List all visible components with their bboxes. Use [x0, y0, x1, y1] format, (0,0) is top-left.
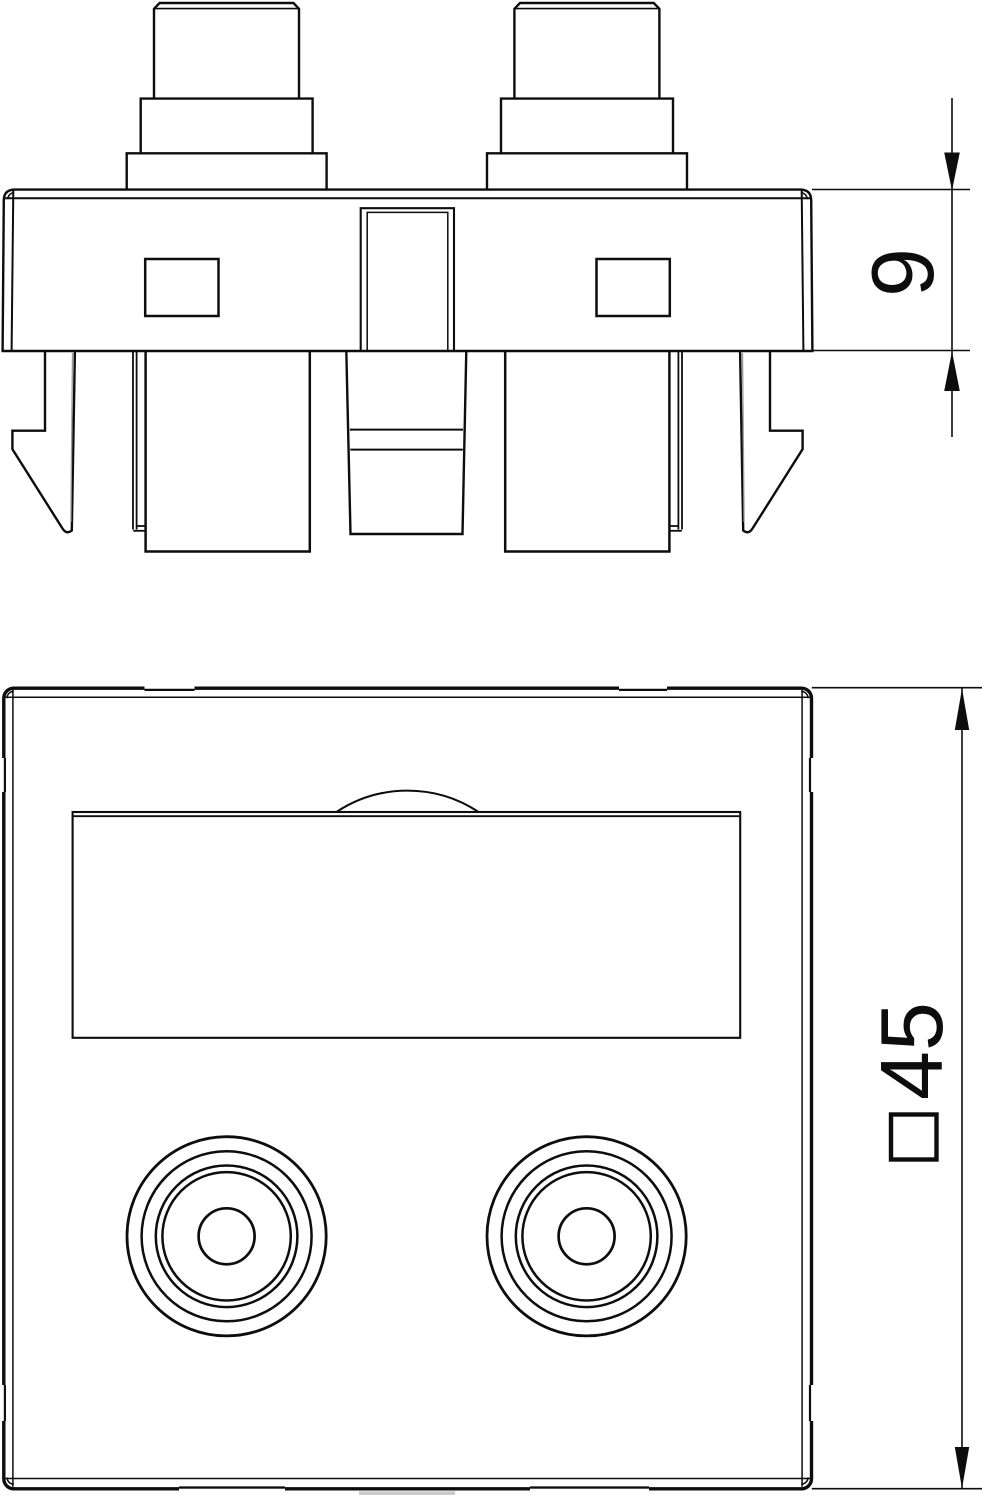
svg-text:45: 45 [862, 1002, 961, 1100]
svg-text:9: 9 [853, 248, 952, 297]
